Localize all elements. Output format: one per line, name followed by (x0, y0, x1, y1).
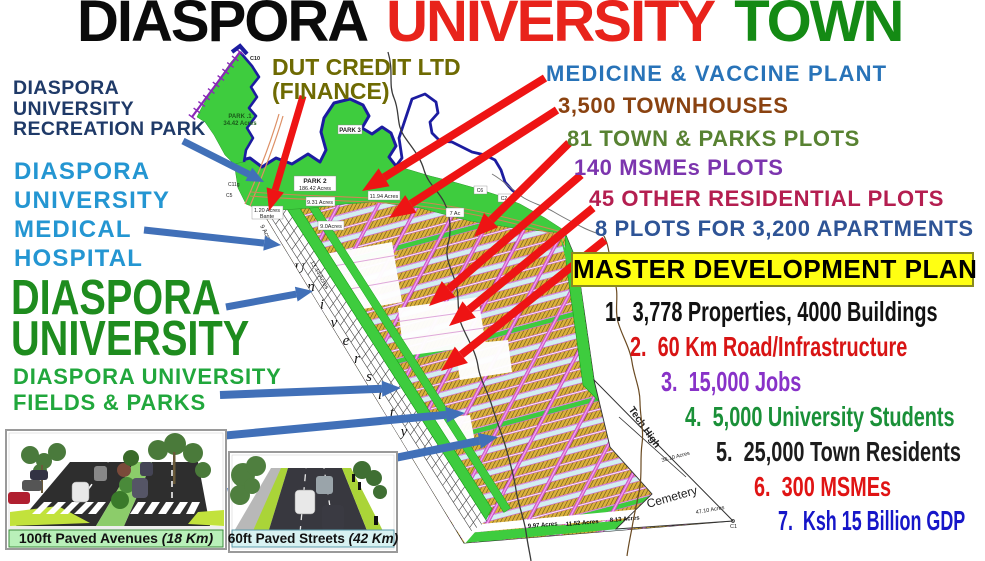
svg-text:v: v (331, 315, 338, 331)
svg-text:C5: C5 (226, 193, 233, 199)
svg-text:11.94 Acres: 11.94 Acres (370, 194, 399, 200)
svg-text:9.0Acres: 9.0Acres (320, 224, 342, 230)
svg-text:PARK 2: PARK 2 (303, 178, 327, 185)
svg-text:9.31 Acres: 9.31 Acres (307, 200, 333, 206)
svg-text:C6: C6 (477, 188, 484, 194)
svg-text:Bante: Bante (260, 214, 274, 220)
svg-text:s: s (366, 369, 372, 385)
svg-text:C1: C1 (730, 524, 737, 530)
svg-text:7 Ac: 7 Ac (450, 211, 461, 217)
svg-text:C10: C10 (250, 56, 260, 62)
svg-text:186.42 Acres: 186.42 Acres (299, 186, 331, 192)
svg-text:C11g: C11g (228, 182, 240, 188)
svg-text:i: i (320, 297, 324, 313)
svg-text:e: e (343, 333, 350, 349)
svg-text:PARK 3: PARK 3 (339, 128, 361, 134)
svg-text:34.42 Acres: 34.42 Acres (223, 121, 257, 127)
svg-text:100ft Paved Avenues (18 Km): 100ft Paved Avenues (18 Km) (19, 530, 214, 546)
svg-text:U: U (294, 261, 306, 277)
svg-text:60ft Paved Streets (42 Km): 60ft Paved Streets (42 Km) (228, 531, 399, 546)
svg-text:PARK .1: PARK .1 (228, 114, 252, 120)
svg-text:y: y (399, 424, 408, 440)
